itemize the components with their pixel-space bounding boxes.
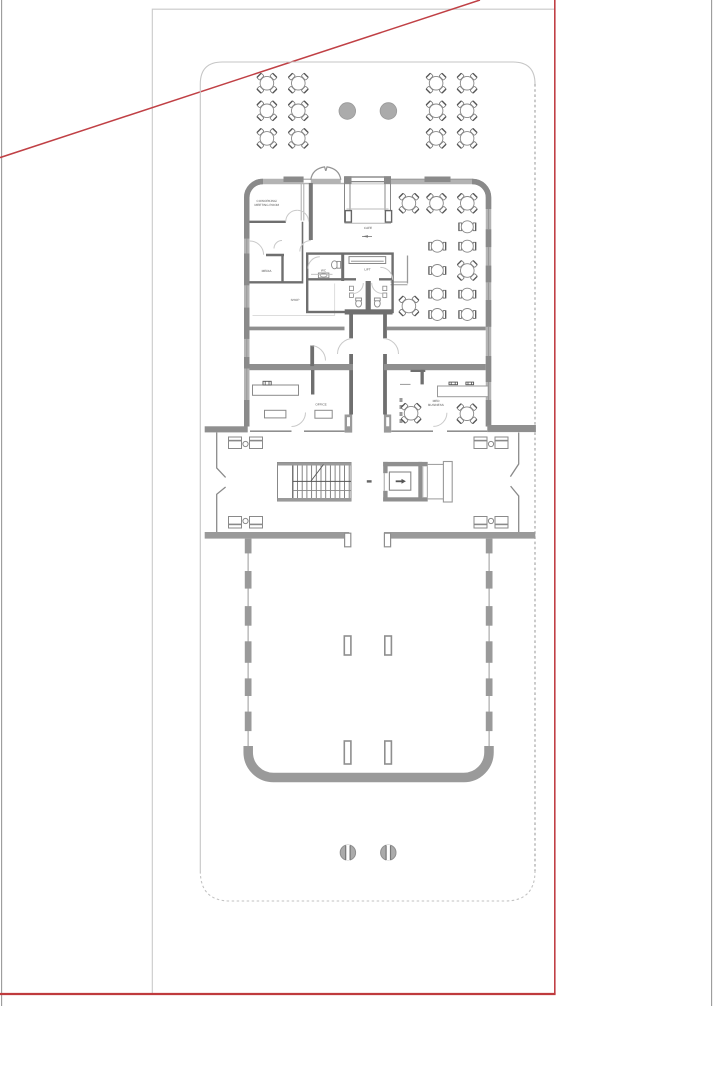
svg-text:WC: WC [321,269,327,273]
svg-text:LIFT: LIFT [364,268,370,272]
svg-text:OFFICE: OFFICE [315,403,326,407]
svg-text:CAFE: CAFE [364,226,372,230]
svg-text:SHOP: SHOP [291,298,300,302]
svg-text:BUSINESS: BUSINESS [428,403,444,407]
svg-text:MEDIA: MEDIA [262,269,273,273]
svg-text:MEETING ROOM: MEETING ROOM [255,203,280,207]
